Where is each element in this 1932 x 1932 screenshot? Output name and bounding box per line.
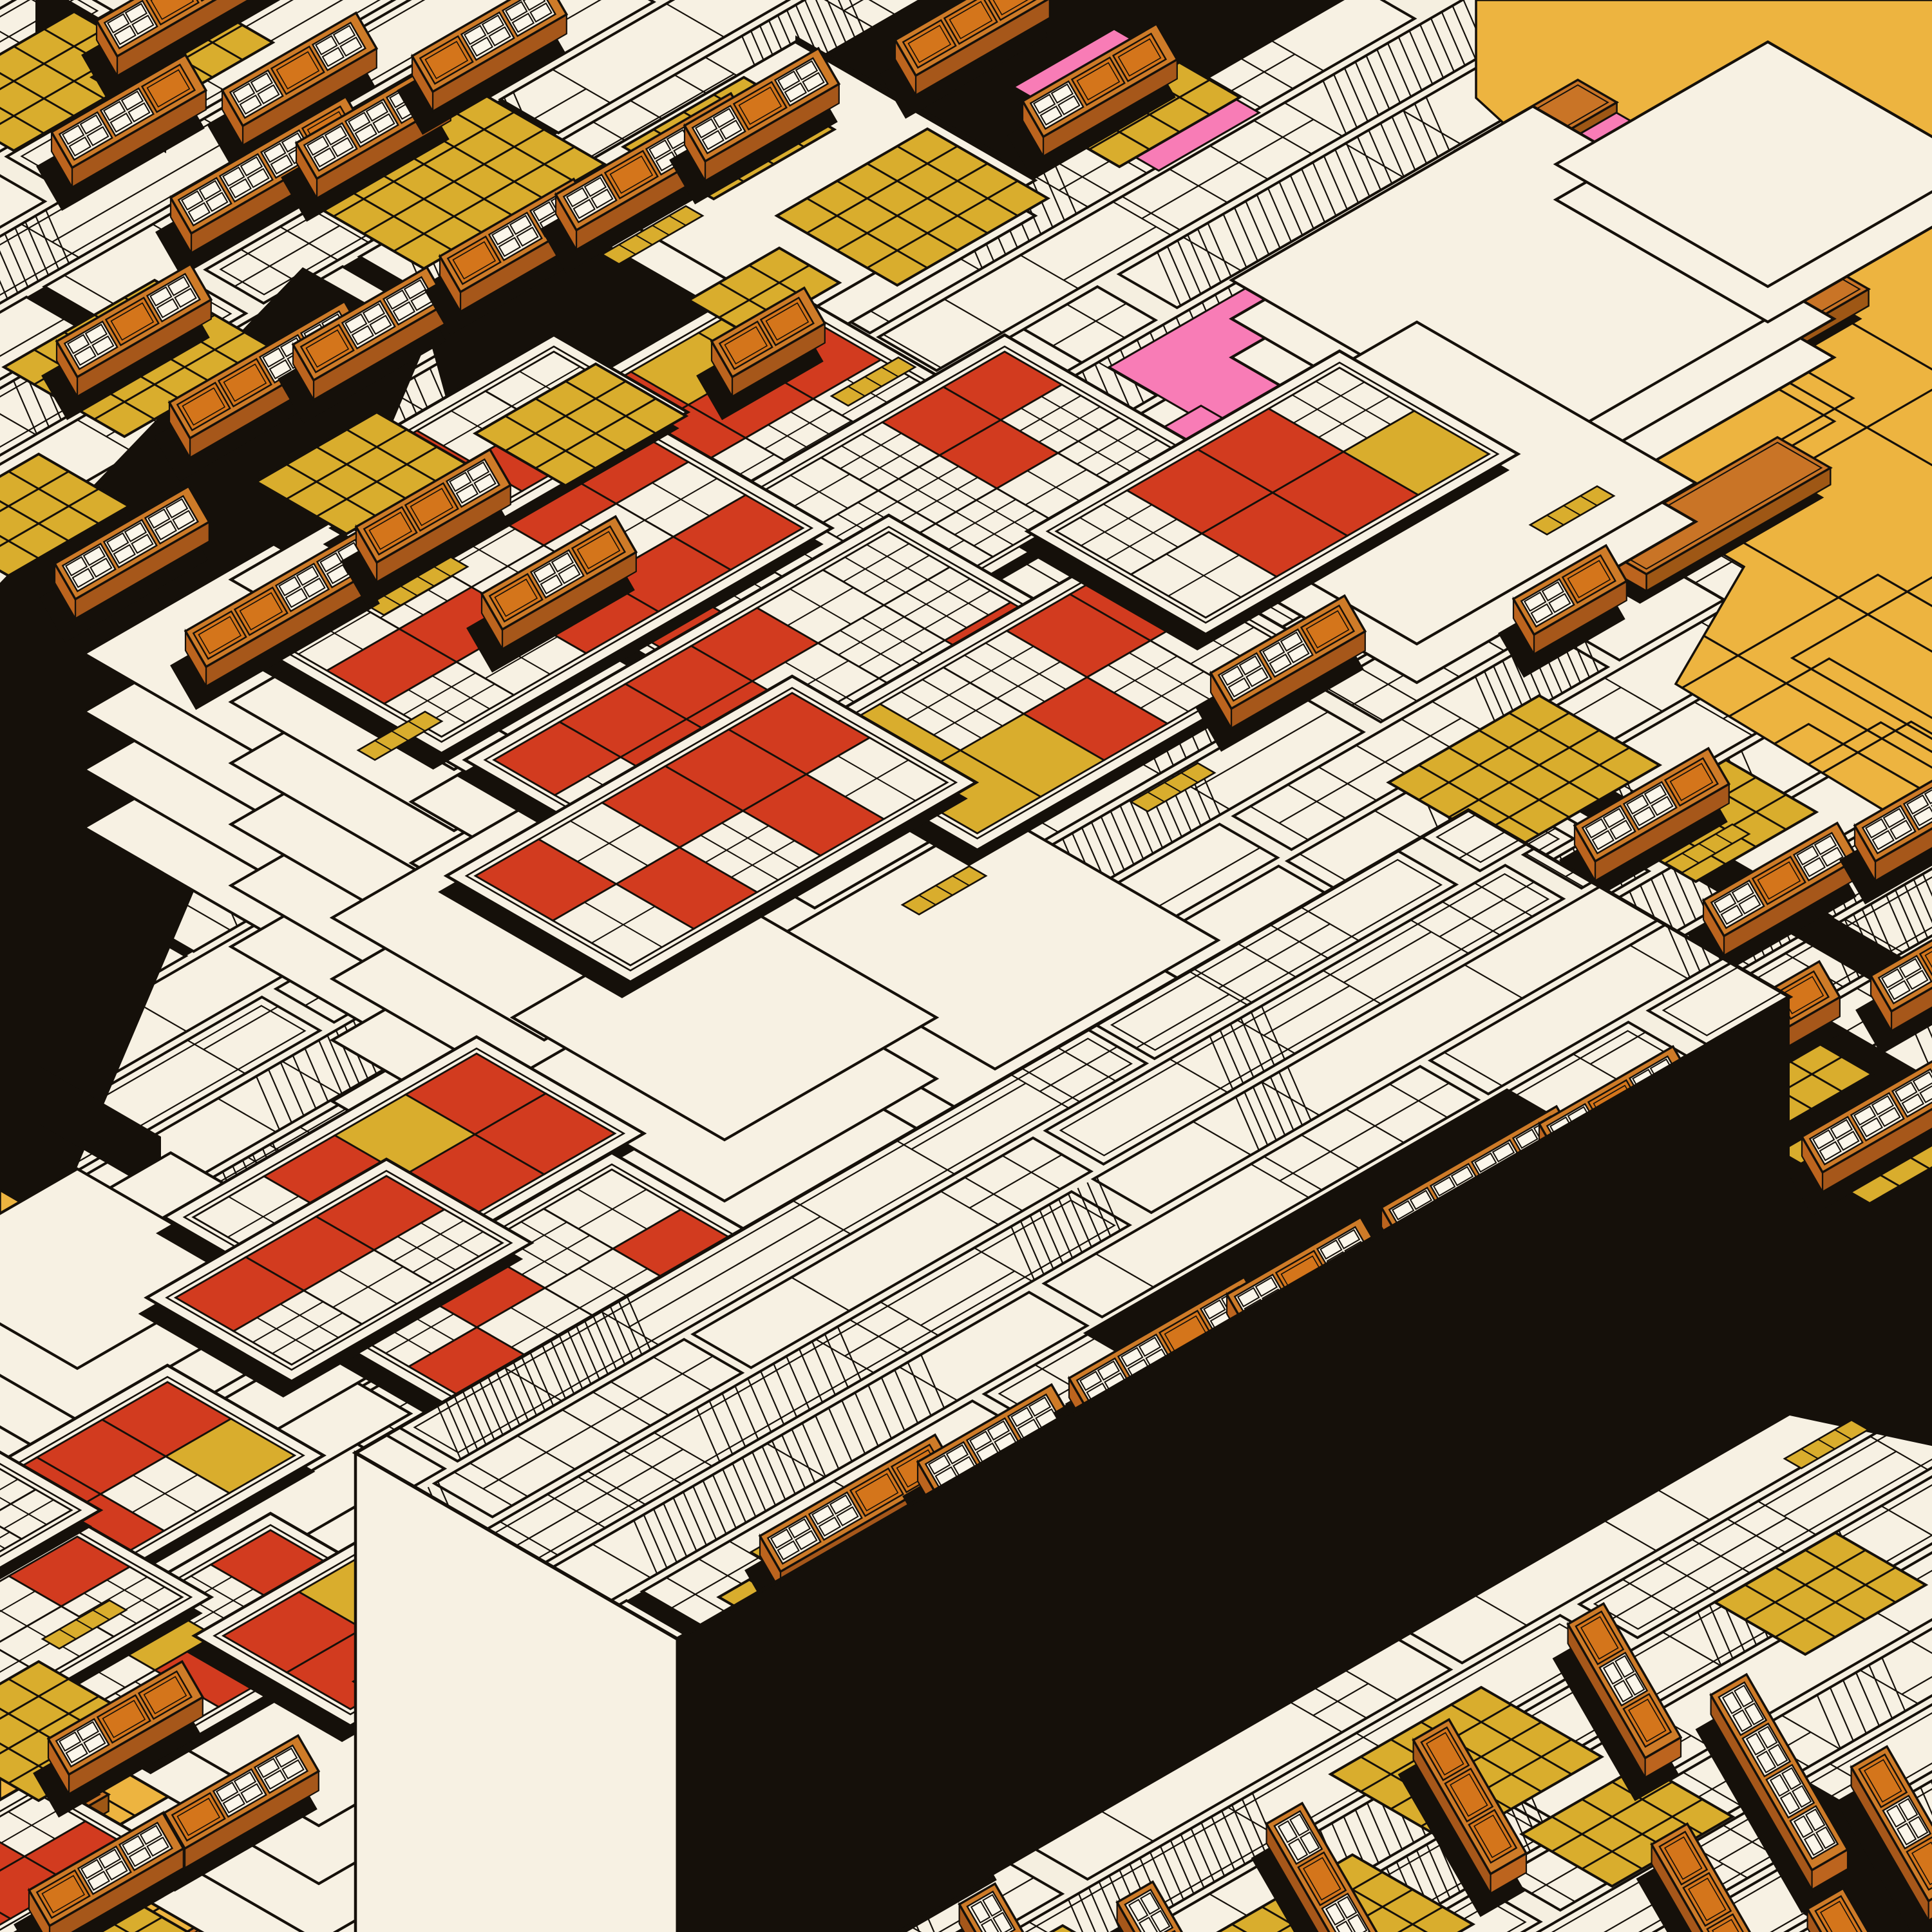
artwork-canvas xyxy=(0,0,1932,1932)
abstract-iso-artwork xyxy=(0,0,1932,1932)
